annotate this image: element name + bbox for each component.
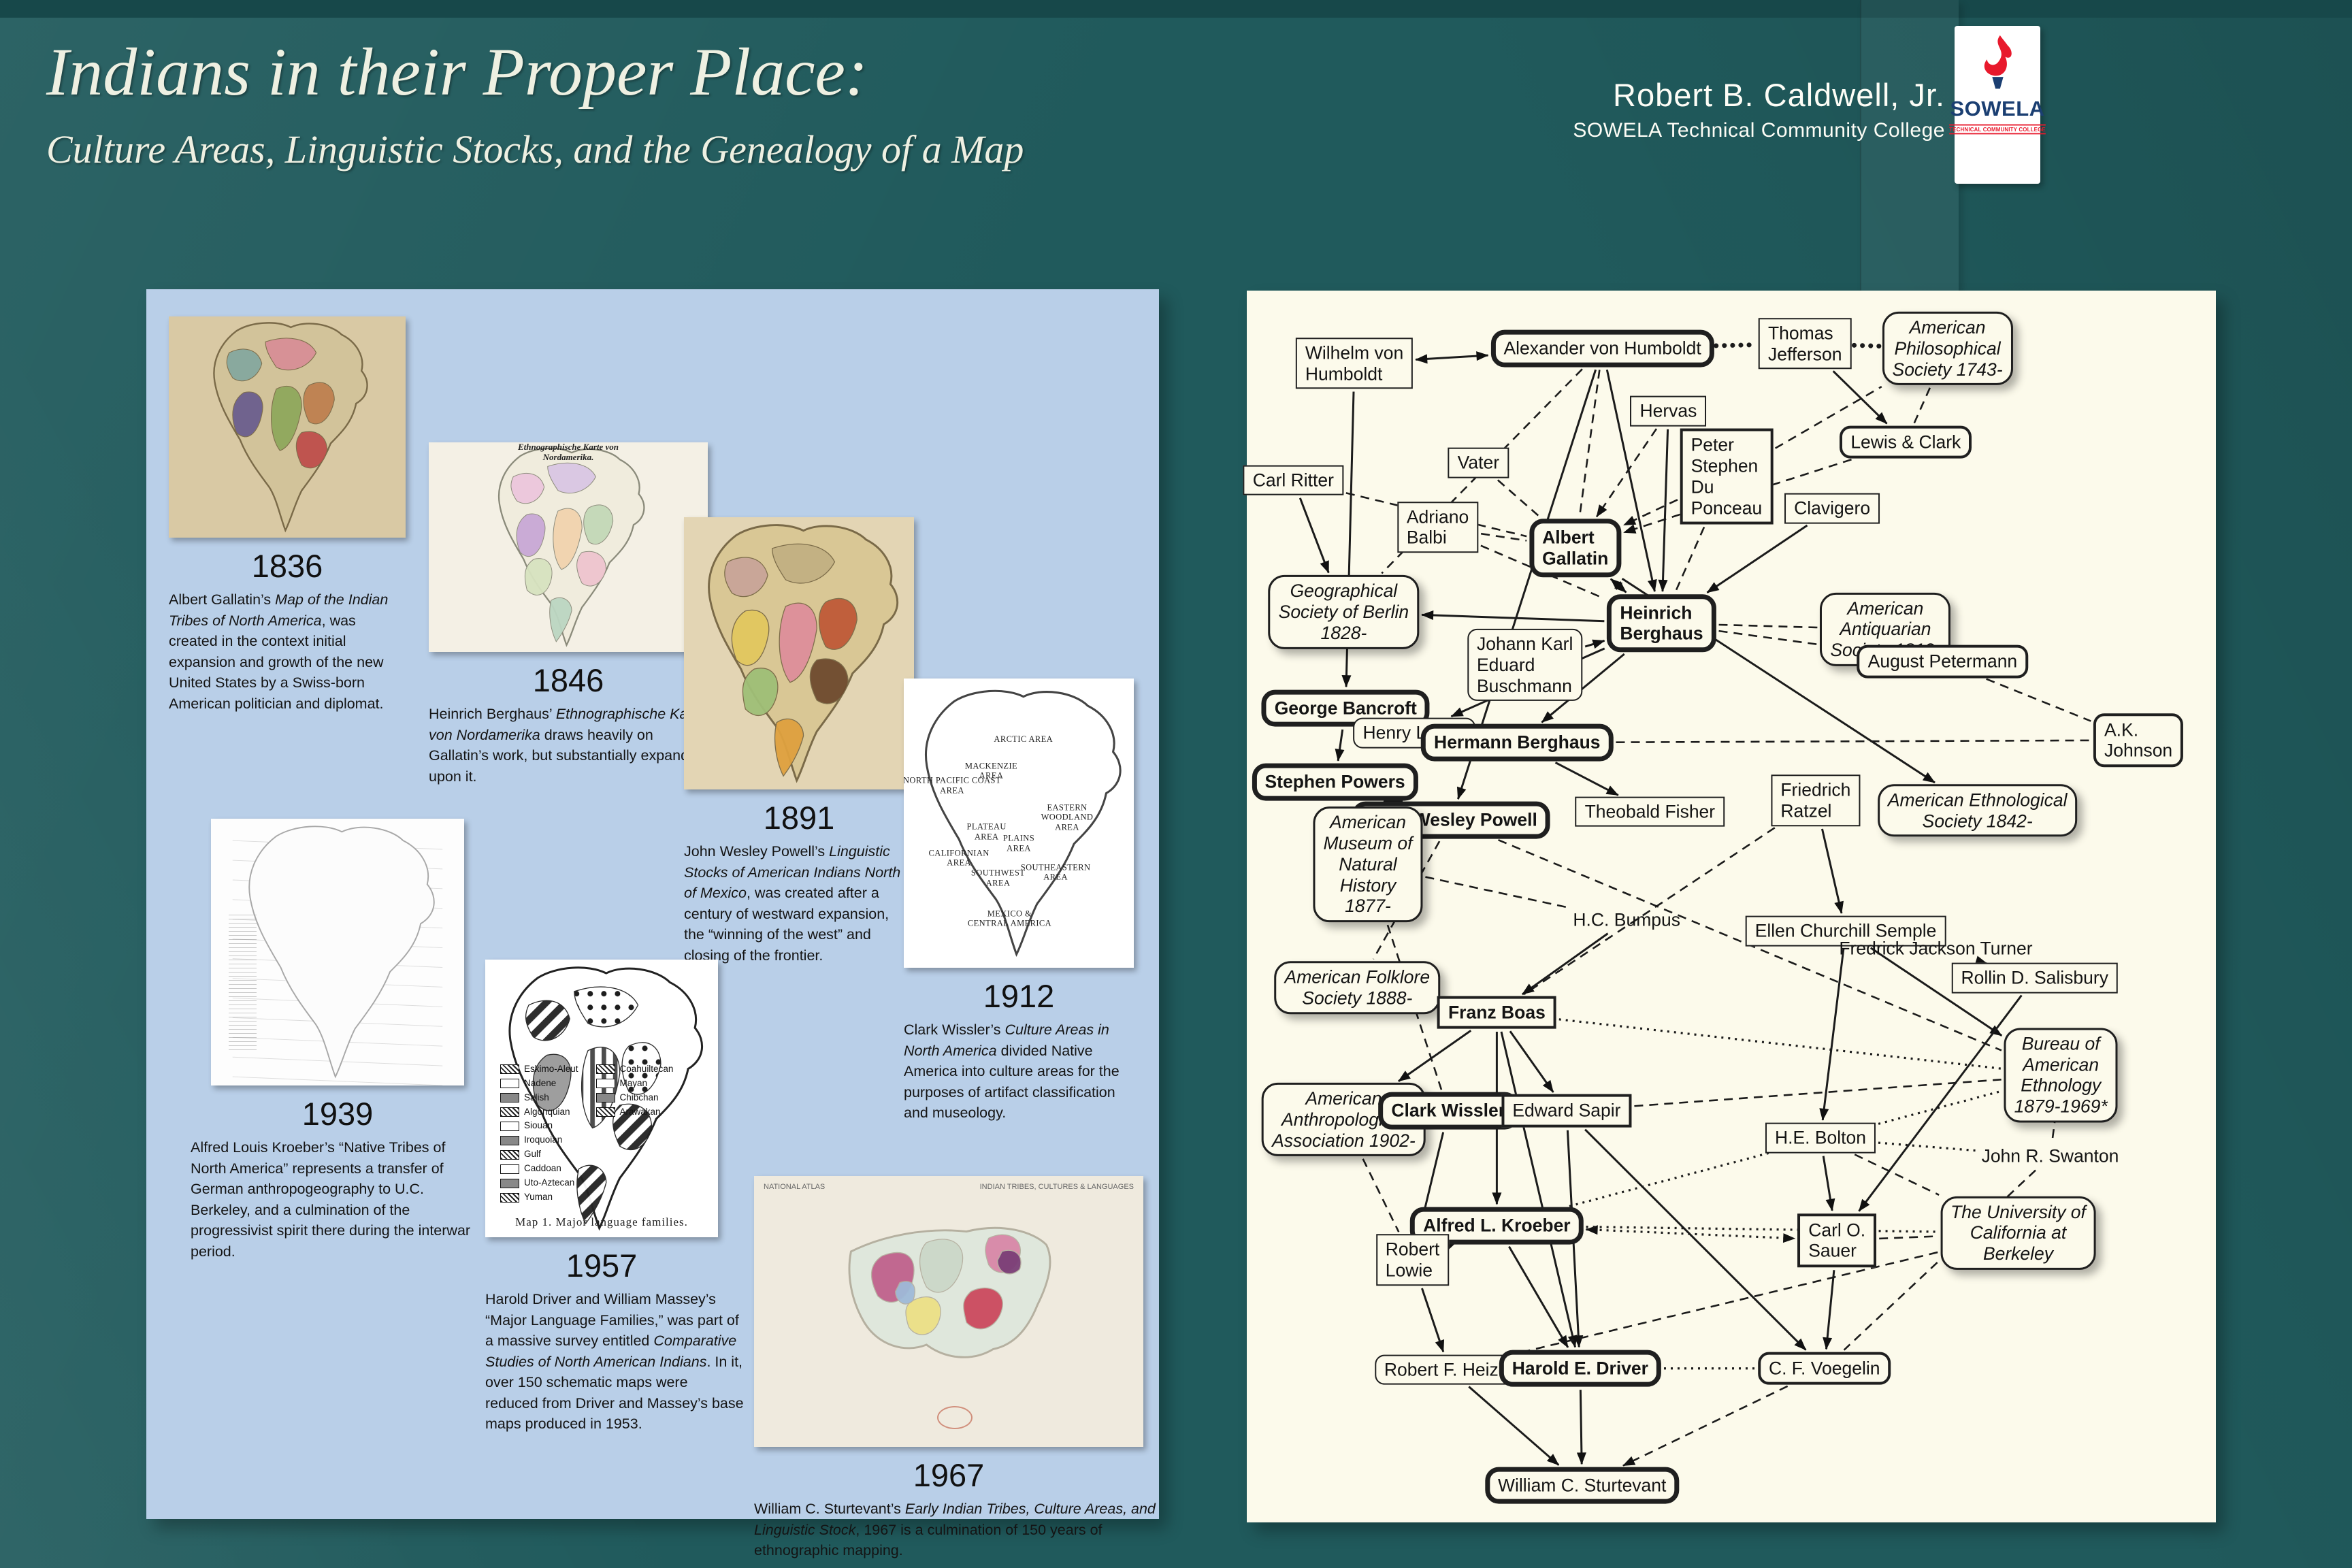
legend-label: Salish bbox=[524, 1091, 549, 1105]
legend-swatch bbox=[596, 1064, 615, 1074]
diagram-edge-hervas-gallatin bbox=[1597, 429, 1656, 517]
map-image-1939 bbox=[211, 819, 464, 1085]
legend-swatch bbox=[500, 1064, 519, 1074]
diagram-edge-carlritter-gsb bbox=[1300, 498, 1328, 573]
diagram-edge-petermann-akjohnson bbox=[1987, 679, 2091, 721]
diagram-edge-aas-heinrich bbox=[1719, 625, 1818, 627]
diagram-edge-kroeber-driver bbox=[1509, 1247, 1568, 1347]
diagram-edge-hervas-heinrich bbox=[1663, 429, 1668, 591]
diagram-node-sauer: Carl O. Sauer bbox=[1797, 1213, 1876, 1267]
legend-swatch bbox=[500, 1107, 519, 1117]
diagram-edge-sauer-ucb bbox=[1879, 1236, 1938, 1239]
diagram-node-powers: Stephen Powers bbox=[1252, 764, 1418, 801]
diagram-node-hermann: Hermann Berghaus bbox=[1421, 724, 1613, 762]
culture-area-label: PLATEAU AREA bbox=[966, 822, 1006, 842]
diagram-edge-boas-aaa bbox=[1399, 1030, 1471, 1081]
diagram-node-fjturner: Fredrick Jackson Turner bbox=[1836, 936, 2035, 960]
legend-label: Chibchan bbox=[620, 1091, 659, 1105]
logo-wordmark: SOWELA bbox=[1950, 97, 2044, 121]
map-year-1836: 1836 bbox=[169, 547, 406, 585]
diagram-node-sapir: Edward Sapir bbox=[1501, 1094, 1631, 1128]
diagram-edge-sapir-voegelin bbox=[1585, 1130, 1806, 1350]
diagram-node-balbi: Adriano Balbi bbox=[1397, 502, 1478, 553]
diagram-node-vater: Vater bbox=[1448, 448, 1509, 478]
culture-area-label: ARCTIC AREA bbox=[994, 734, 1053, 744]
legend-label: Arawakan bbox=[620, 1105, 661, 1120]
map-caption-1836: Albert Gallatin’s Map of the Indian Trib… bbox=[169, 589, 408, 714]
diagram-edge-lowie-heizer bbox=[1422, 1288, 1443, 1352]
diagram-node-lewisclark: Lewis & Clark bbox=[1840, 425, 1972, 459]
legend-label: Caddoan bbox=[524, 1162, 561, 1176]
top-accent-strip bbox=[0, 0, 2352, 18]
map-caption-1846: Heinrich Berghaus’ Ethnographische Karte… bbox=[429, 704, 715, 787]
map-year-1967: 1967 bbox=[754, 1456, 1143, 1494]
diagram-node-jefferson: Thomas Jefferson bbox=[1759, 318, 1852, 369]
diagram-edge-aaa-lowie bbox=[1363, 1159, 1399, 1232]
map-image-1967: NATIONAL ATLASINDIAN TRIBES, CULTURES & … bbox=[754, 1176, 1143, 1447]
diagram-edge-heinrich-gsb bbox=[1422, 615, 1604, 621]
diagram-node-petermann: August Petermann bbox=[1857, 644, 2029, 678]
poster-title: Indians in their Proper Place: bbox=[46, 35, 1244, 109]
diagram-node-swanton: John R. Swanton bbox=[1979, 1145, 2122, 1169]
legend-swatch bbox=[596, 1093, 615, 1102]
diagram-node-ucb: The University of California at Berkeley bbox=[1940, 1196, 2096, 1270]
legend-label: Gulf bbox=[524, 1147, 541, 1162]
diagram-edge-wilhelm-alexander bbox=[1416, 355, 1488, 359]
diagram-edge-sapir-bae bbox=[1634, 1079, 2001, 1106]
diagram-edge-bolton-sauer bbox=[1823, 1156, 1832, 1211]
map-image-1912: ARCTIC AREAMACKENZIE AREANORTH PACIFIC C… bbox=[904, 679, 1134, 968]
legend-swatch bbox=[500, 1136, 519, 1145]
diagram-edge-amnh-bumpus bbox=[1425, 877, 1569, 908]
diagram-edge-kroeber-ucb bbox=[1586, 1227, 1938, 1232]
legend-label: Nadene bbox=[524, 1077, 556, 1091]
diagram-node-bae: Bureau of American Ethnology 1879-1969* bbox=[2004, 1028, 2118, 1123]
diagram-edge-clavigero-heinrich bbox=[1707, 525, 1807, 593]
legend-label: Algonquian bbox=[524, 1105, 570, 1120]
diagram-edge-boas-bae bbox=[1559, 1019, 2002, 1068]
author-name: Robert B. Caldwell, Jr. bbox=[1573, 76, 1945, 114]
author-block: Robert B. Caldwell, Jr. SOWELA Technical… bbox=[1573, 76, 1945, 142]
map-year-1912: 1912 bbox=[904, 977, 1134, 1015]
map-year-1957: 1957 bbox=[485, 1247, 718, 1284]
legend-label: Eskimo-Aleut bbox=[524, 1062, 578, 1077]
diagram-node-alexander: Alexander von Humboldt bbox=[1490, 330, 1714, 367]
diagram-node-boas: Franz Boas bbox=[1437, 996, 1556, 1029]
diagram-node-hervas: Hervas bbox=[1630, 396, 1706, 427]
diagram-edge-boas-sapir bbox=[1510, 1031, 1553, 1092]
map-caption-1912: Clark Wissler’s Culture Areas in North A… bbox=[904, 1019, 1134, 1124]
legend-label: Mayan bbox=[620, 1077, 648, 1091]
diagram-node-gsb: Geographical Society of Berlin 1828- bbox=[1269, 575, 1419, 649]
legend-swatch bbox=[500, 1164, 519, 1174]
diagram-edge-gallatin-heinrich bbox=[1611, 579, 1627, 593]
diagram-node-akjohnson: A.K. Johnson bbox=[2093, 713, 2183, 767]
diagram-edge-bumpus-boas bbox=[1522, 934, 1608, 994]
diagram-node-wissler: Clark Wissler bbox=[1378, 1092, 1518, 1130]
diagram-edge-boas-driver bbox=[1501, 1032, 1575, 1347]
diagram-edge-ratzel-semple bbox=[1822, 829, 1842, 913]
diagram-edge-voegelin-sturtevant bbox=[1623, 1386, 1788, 1466]
map-year-1939: 1939 bbox=[211, 1095, 464, 1132]
legend-swatch bbox=[500, 1150, 519, 1160]
diagram-node-aps: American Philosophical Society 1743- bbox=[1882, 312, 2013, 385]
diagram-edge-driver-sturtevant bbox=[1580, 1390, 1582, 1464]
diagram-node-driver: Harold E. Driver bbox=[1499, 1350, 1661, 1387]
diagram-node-amnh: American Museum of Natural History 1877- bbox=[1313, 807, 1422, 923]
map-timeline-panel: 1836Albert Gallatin’s Map of the Indian … bbox=[146, 289, 1159, 1519]
diagram-node-fisher: Theobald Fisher bbox=[1575, 796, 1725, 827]
diagram-node-aes: American Ethnological Society 1842- bbox=[1878, 784, 2078, 836]
diagram-edge-buschmann-heinrich bbox=[1585, 640, 1604, 647]
legend-swatch bbox=[596, 1079, 615, 1088]
poster-subtitle: Culture Areas, Linguistic Stocks, and th… bbox=[46, 127, 1244, 172]
map-title-label: Ethnographische Karte von Nordamerika. bbox=[499, 442, 638, 463]
map-image-1957: Eskimo-AleutNadeneSalishAlgonquianSiouan… bbox=[485, 960, 718, 1237]
map-header-right: INDIAN TRIBES, CULTURES & LANGUAGES bbox=[980, 1183, 1134, 1191]
diagram-edge-bancroft-powers bbox=[1338, 730, 1343, 761]
diagram-node-heinrich: Heinrich Berghaus bbox=[1607, 594, 1716, 652]
diagram-edge-hermann-akjohnson bbox=[1616, 740, 2091, 742]
diagram-edge-salisbury-sauer bbox=[1859, 996, 2022, 1211]
culture-area-label: SOUTHEASTERN AREA bbox=[1021, 862, 1091, 882]
diagram-node-clavigero: Clavigero bbox=[1784, 493, 1880, 524]
map-header-left: NATIONAL ATLAS bbox=[764, 1183, 825, 1191]
diagram-edge-vater-gallatin bbox=[1498, 480, 1540, 517]
legend-swatch bbox=[500, 1122, 519, 1131]
diagram-node-voegelin: C. F. Voegelin bbox=[1758, 1352, 1891, 1385]
map-legend: Eskimo-AleutNadeneSalishAlgonquianSiouan… bbox=[500, 1062, 673, 1205]
diagram-edge-jefferson-lewisclark bbox=[1833, 371, 1887, 423]
vertical-accent-band bbox=[1860, 0, 1959, 303]
diagram-node-bumpus: H.C. Bumpus bbox=[1570, 909, 1683, 932]
culture-area-label: CALIFORNIAN AREA bbox=[929, 848, 990, 868]
diagram-node-sturtevant: William C. Sturtevant bbox=[1485, 1467, 1679, 1504]
diagram-edge-balbi-gallatin bbox=[1481, 534, 1526, 540]
diagram-edge-heizer-sturtevant bbox=[1469, 1387, 1558, 1465]
sowela-logo: SOWELA TECHNICAL COMMUNITY COLLEGE bbox=[1955, 26, 2040, 184]
legend-swatch bbox=[500, 1093, 519, 1102]
poster: Indians in their Proper Place: Culture A… bbox=[0, 0, 2352, 1568]
legend-label: Siouan bbox=[524, 1119, 553, 1133]
flame-icon bbox=[1966, 33, 2029, 95]
logo-tagline: TECHNICAL COMMUNITY COLLEGE bbox=[1949, 125, 2046, 135]
legend-label: Iroquoian bbox=[524, 1133, 562, 1147]
legend-swatch bbox=[500, 1193, 519, 1203]
diagram-node-gallatin: Albert Gallatin bbox=[1529, 519, 1621, 577]
legend-label: Yuman bbox=[524, 1190, 553, 1205]
legend-swatch bbox=[596, 1107, 615, 1117]
diagram-node-wilhelm: Wilhelm von Humboldt bbox=[1296, 338, 1413, 389]
legend-label: Uto-Aztecan bbox=[524, 1176, 574, 1190]
diagram-edge-sauer-voegelin bbox=[1826, 1270, 1833, 1349]
diagram-node-bolton: H.E. Bolton bbox=[1765, 1123, 1876, 1154]
map-image-1836 bbox=[169, 316, 406, 538]
tribal-index-column bbox=[229, 915, 257, 1053]
genealogy-diagram-panel: Wilhelm von HumboldtAlexander von Humbol… bbox=[1247, 291, 2216, 1522]
culture-area-label: PLAINS AREA bbox=[1003, 834, 1034, 853]
diagram-node-lowie: Robert Lowie bbox=[1376, 1235, 1450, 1286]
title-block: Indians in their Proper Place: Culture A… bbox=[46, 35, 1244, 172]
diagram-node-buschmann: Johann Karl Eduard Buschmann bbox=[1467, 629, 1582, 701]
map-caption-1891: John Wesley Powell’s Linguistic Stocks o… bbox=[684, 841, 909, 966]
map-year-1846: 1846 bbox=[429, 661, 708, 699]
map-caption-1939: Alfred Louis Kroeber’s “Native Tribes of… bbox=[191, 1137, 471, 1262]
diagram-edge-aps-lewisclark bbox=[1914, 388, 1930, 423]
culture-area-label: SOUTHWEST AREA bbox=[971, 868, 1025, 888]
culture-area-label: NORTH PACIFIC COAST AREA bbox=[904, 776, 1001, 796]
diagram-node-ratzel: Friedrich Ratzel bbox=[1771, 775, 1860, 826]
diagram-node-salisbury: Rollin D. Salisbury bbox=[1951, 963, 2118, 994]
diagram-edge-jefferson-aps bbox=[1854, 345, 1879, 346]
diagram-node-afs: American Folklore Society 1888- bbox=[1275, 962, 1441, 1014]
diagram-node-carlritter: Carl Ritter bbox=[1243, 465, 1343, 495]
diagram-edge-semple-bolton bbox=[1823, 949, 1844, 1120]
legend-swatch bbox=[500, 1179, 519, 1188]
map-number-label: Map 1. Major language families. bbox=[485, 1215, 718, 1229]
diagram-edge-bolton-swanton bbox=[1878, 1143, 1976, 1151]
map-image-1891 bbox=[684, 517, 914, 789]
culture-area-label: EASTERN WOODLAND AREA bbox=[1034, 802, 1100, 832]
author-affiliation: SOWELA Technical Community College bbox=[1573, 119, 1945, 142]
map-image-1846: Ethnographische Karte von Nordamerika. bbox=[429, 442, 708, 652]
diagram-node-duponceau: Peter Stephen Du Ponceau bbox=[1680, 429, 1774, 525]
diagram-edge-duponceau-gallatin bbox=[1624, 500, 1678, 525]
archive-stamp bbox=[937, 1406, 973, 1429]
culture-area-label: MEXICO & CENTRAL AMERICA bbox=[968, 909, 1051, 928]
map-caption-1967: William C. Sturtevant’s Early Indian Tri… bbox=[754, 1499, 1157, 1561]
diagram-edge-duponceau-heinrich bbox=[1676, 527, 1704, 591]
legend-swatch bbox=[500, 1079, 519, 1088]
diagram-edge-hermann-fisher bbox=[1556, 762, 1618, 795]
map-year-1891: 1891 bbox=[684, 799, 914, 836]
legend-label: Coahuiltecan bbox=[620, 1062, 674, 1077]
map-caption-1957: Harold Driver and William Massey’s “Majo… bbox=[485, 1289, 744, 1435]
